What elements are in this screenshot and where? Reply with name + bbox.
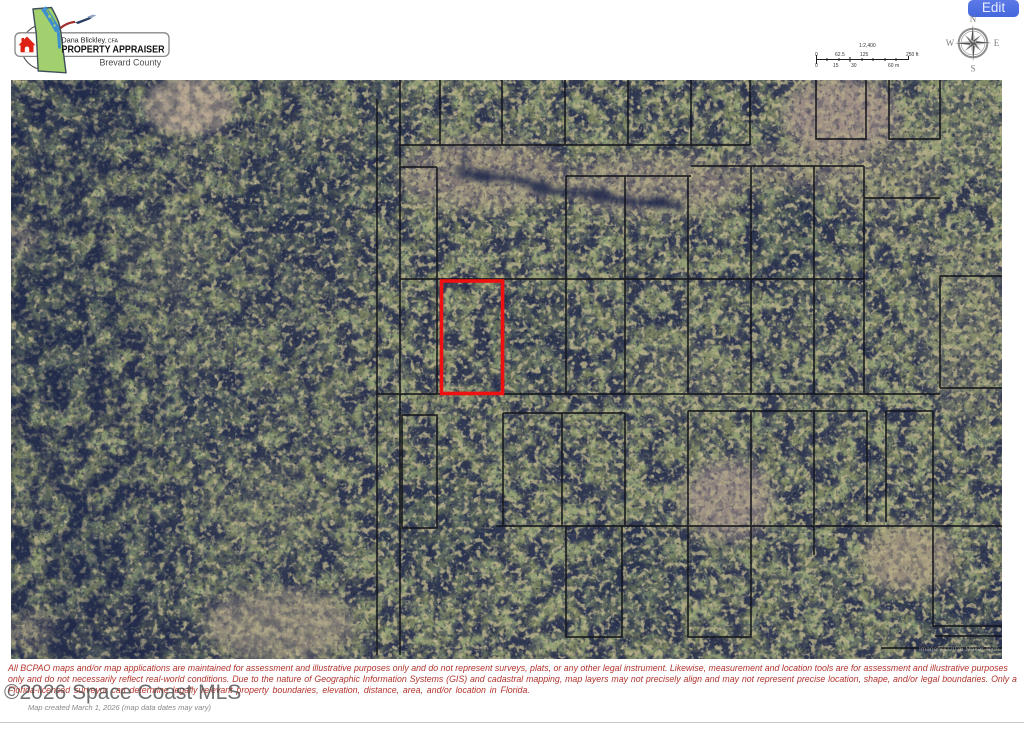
svg-text:30: 30 xyxy=(851,63,857,69)
svg-text:S: S xyxy=(970,64,975,74)
svg-text:W: W xyxy=(946,38,955,48)
svg-text:Brevard County: Brevard County xyxy=(100,57,162,67)
svg-text:62.5: 62.5 xyxy=(835,52,845,58)
svg-text:15: 15 xyxy=(833,63,839,69)
svg-text:1:2,400: 1:2,400 xyxy=(859,43,876,49)
svg-text:N: N xyxy=(970,14,977,24)
svg-text:E: E xyxy=(994,38,1000,48)
svg-text:PROPERTY APPRAISER: PROPERTY APPRAISER xyxy=(62,45,165,56)
svg-text:250 ft: 250 ft xyxy=(906,52,919,58)
svg-text:60 m: 60 m xyxy=(888,63,899,69)
svg-text:125: 125 xyxy=(860,52,869,58)
svg-text:Imagery ©2026 Maxar Tech...: Imagery ©2026 Maxar Tech... xyxy=(919,645,1002,653)
